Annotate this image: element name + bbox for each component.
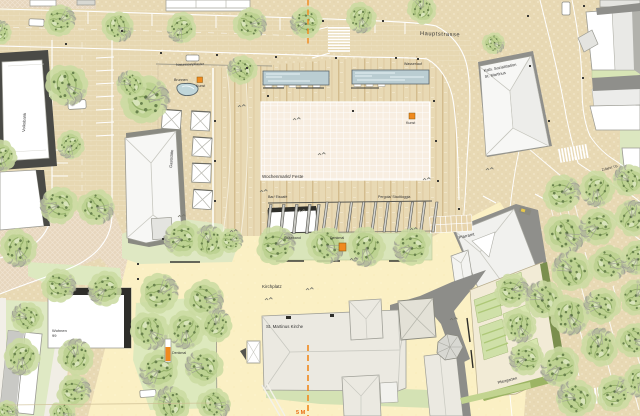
svg-text:Volksbank: Volksbank [21, 112, 27, 132]
svg-text:St. Martinus Kirche: St. Martinus Kirche [266, 324, 304, 329]
svg-text:Brunnen: Brunnen [174, 78, 188, 82]
svg-text:Stützwand: Stützwand [284, 236, 301, 240]
svg-text:Bar/ Eiscafé: Bar/ Eiscafé [268, 195, 287, 199]
svg-text:Pergola/ Stadtloggia: Pergola/ Stadtloggia [378, 195, 410, 199]
svg-text:Denkmal: Denkmal [172, 351, 186, 355]
svg-text:99: 99 [52, 333, 57, 338]
svg-text:Denkmal: Denkmal [330, 236, 344, 240]
svg-text:Wasserlauf: Wasserlauf [404, 62, 422, 66]
svg-text:Wochenmarkt/ Feste: Wochenmarkt/ Feste [262, 174, 304, 179]
svg-text:Kunst: Kunst [196, 84, 205, 88]
svg-text:Kunst: Kunst [406, 121, 415, 125]
svg-text:5 M: 5 M [296, 410, 306, 416]
svg-text:Kirchplatz: Kirchplatz [262, 284, 283, 289]
